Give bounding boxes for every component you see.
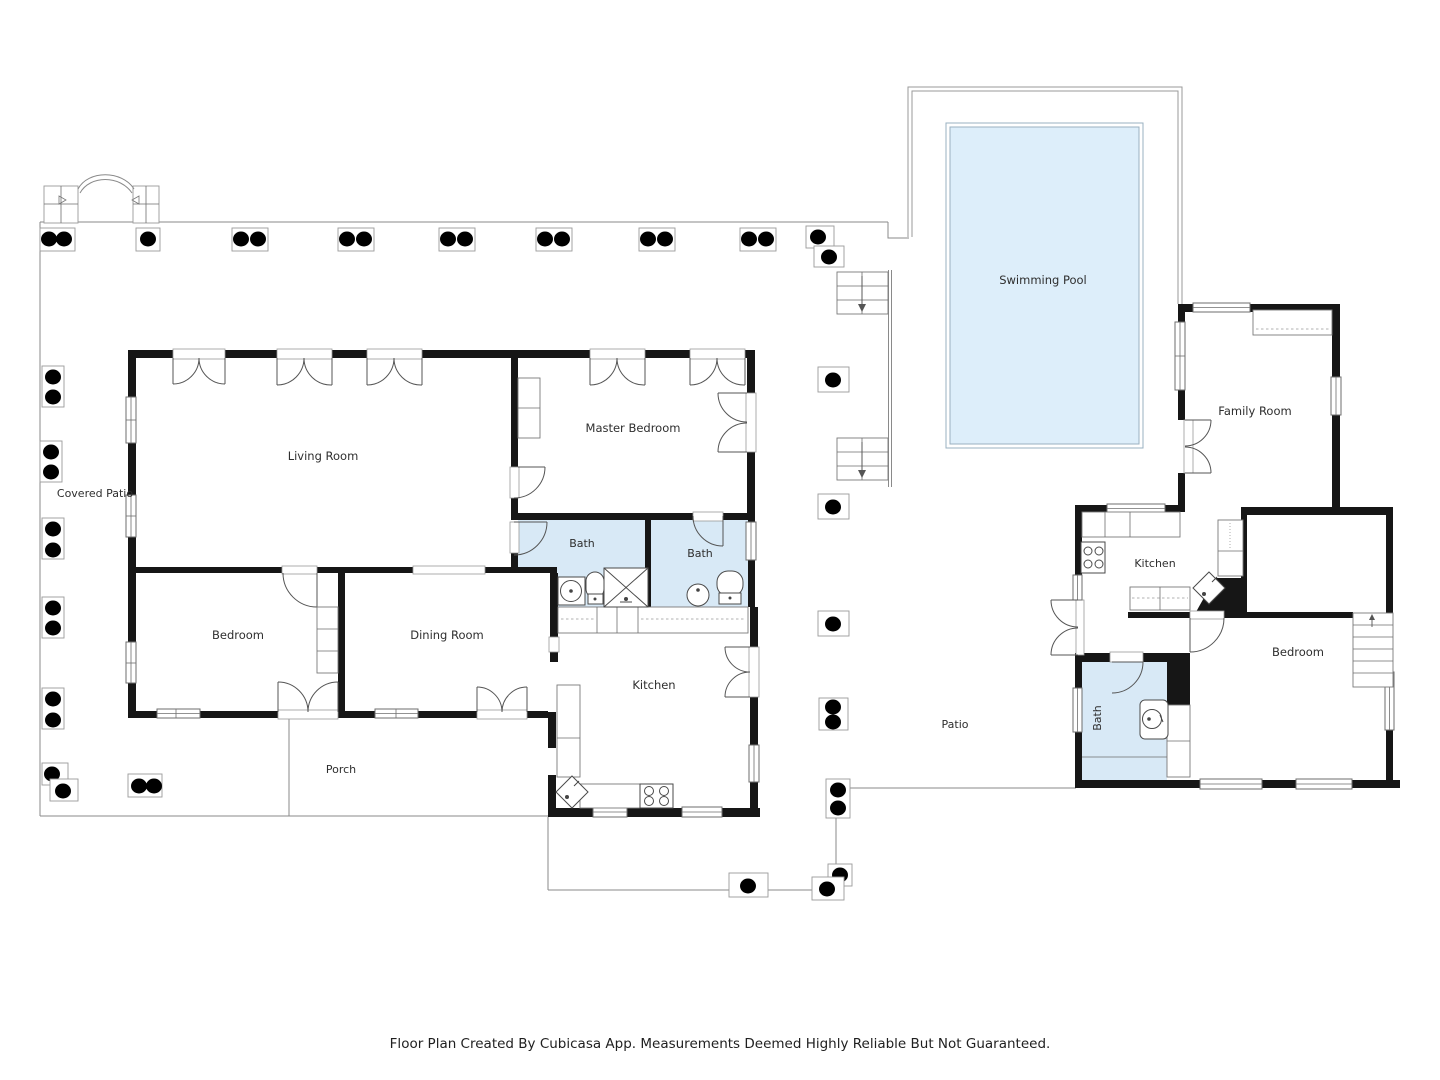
- guest-house-door-frames: [1076, 420, 1224, 662]
- window: [126, 642, 136, 683]
- room-label-kitchen: Kitchen: [632, 678, 675, 692]
- column: [50, 779, 78, 801]
- column: [128, 774, 162, 797]
- column: [42, 597, 64, 638]
- guest-bath-sink-icon: [1140, 700, 1168, 739]
- stairs-upper: [837, 272, 888, 314]
- kitchen-counters: [557, 607, 748, 808]
- window: [1200, 779, 1262, 789]
- guest-bedroom-closet: [1167, 705, 1190, 777]
- stove-icon: [640, 784, 673, 808]
- room-label-guest-bedroom: Bedroom: [1272, 645, 1324, 659]
- column: [639, 228, 675, 251]
- window: [375, 709, 418, 718]
- window: [126, 397, 136, 443]
- column: [812, 877, 844, 900]
- colonnade-columns-left: [40, 366, 162, 801]
- room-label-patio: Patio: [942, 718, 969, 731]
- room-label-dining-room: Dining Room: [410, 628, 484, 642]
- window: [1331, 377, 1341, 415]
- family-room-counter: [1253, 310, 1332, 335]
- window: [749, 745, 759, 782]
- column: [740, 228, 776, 251]
- room-label-bedroom: Bedroom: [212, 628, 264, 642]
- entry-arch: [44, 175, 159, 223]
- bedroom-closet: [317, 607, 338, 673]
- room-label-bath-2: Bath: [687, 547, 713, 560]
- floor-plan-page: Swimming Pool: [0, 0, 1440, 1080]
- room-label-porch: Porch: [326, 763, 356, 776]
- room-label-living-room: Living Room: [288, 449, 359, 463]
- window: [1073, 575, 1082, 600]
- window: [1175, 322, 1185, 390]
- window: [157, 709, 200, 718]
- column: [818, 611, 849, 636]
- column: [818, 494, 849, 519]
- window: [126, 495, 136, 537]
- window: [682, 807, 722, 817]
- column: [40, 441, 62, 482]
- column: [826, 779, 850, 818]
- guest-stove-icon: [1081, 542, 1105, 573]
- column: [814, 246, 844, 267]
- column: [806, 226, 834, 248]
- room-label-covered-patio: Covered Patio: [57, 487, 133, 500]
- floor-plan-canvas: Swimming Pool: [0, 0, 1440, 1080]
- stairs-guest: [1353, 613, 1393, 687]
- bath1-toilet-icon: [586, 572, 604, 604]
- colonnade-columns-top: [40, 226, 844, 267]
- bath2-toilet-icon: [717, 571, 743, 604]
- room-label-guest-kitchen: Kitchen: [1134, 557, 1175, 570]
- footer-disclaimer: Floor Plan Created By Cubicasa App. Meas…: [390, 1036, 1051, 1052]
- column: [136, 228, 160, 251]
- column: [536, 228, 572, 251]
- column: [818, 367, 849, 392]
- column: [819, 698, 848, 730]
- column: [42, 518, 64, 559]
- swimming-pool: Swimming Pool: [946, 123, 1143, 448]
- room-label-bath-1: Bath: [569, 537, 595, 550]
- window: [1073, 688, 1082, 732]
- column: [40, 228, 75, 251]
- column: [338, 228, 374, 251]
- room-label-family-room: Family Room: [1218, 404, 1291, 418]
- window: [746, 522, 756, 560]
- stairs-lower: [837, 438, 888, 480]
- column: [232, 228, 268, 251]
- main-house: Covered Patio Living Room Master Bedroom…: [57, 349, 760, 817]
- bath2-sink-icon: [687, 584, 709, 606]
- master-closet: [518, 378, 540, 438]
- room-label-swimming-pool: Swimming Pool: [999, 273, 1087, 287]
- window: [1193, 303, 1250, 312]
- room-label-master-bedroom: Master Bedroom: [586, 421, 681, 435]
- window: [593, 807, 627, 817]
- window: [1296, 779, 1352, 789]
- bath1-vanity-sink-icon: [558, 577, 585, 605]
- column: [42, 688, 64, 729]
- room-label-guest-bath: Bath: [1091, 705, 1104, 731]
- column: [42, 366, 64, 407]
- column: [439, 228, 475, 251]
- column: [729, 873, 768, 897]
- shower-icon: [604, 568, 648, 607]
